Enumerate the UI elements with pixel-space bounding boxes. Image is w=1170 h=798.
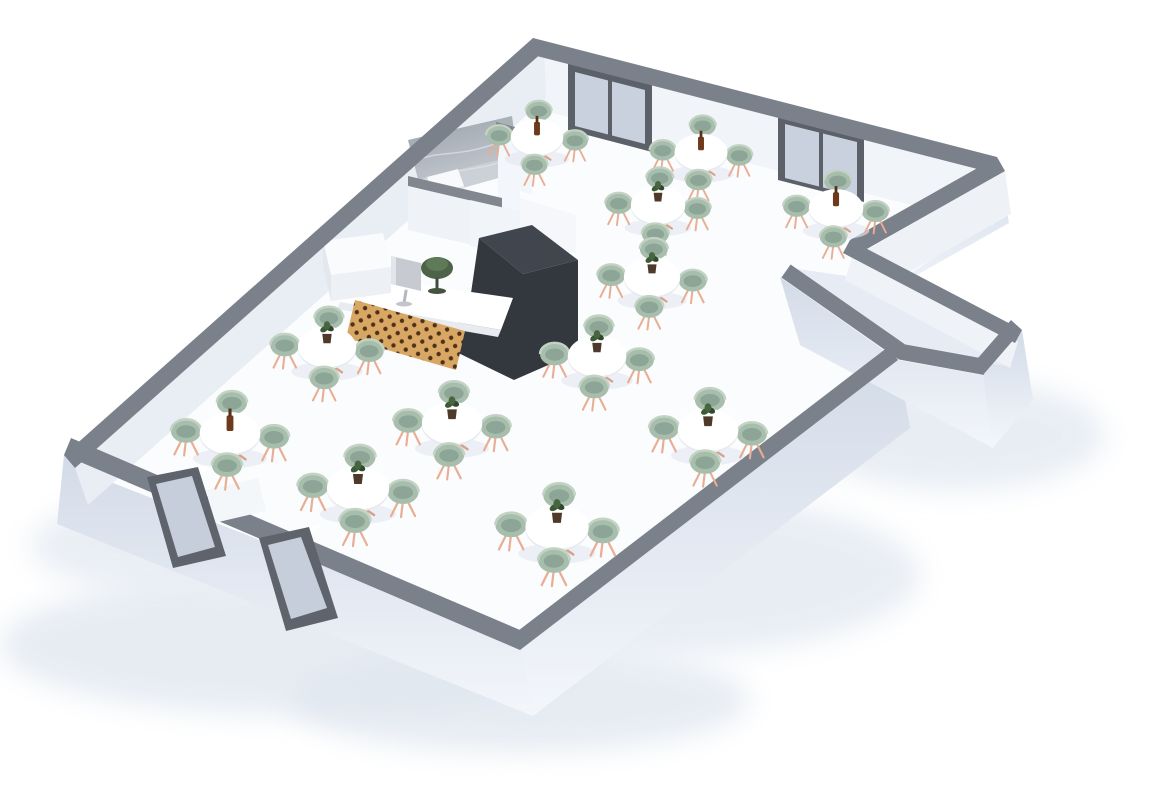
monitor-stand [404,291,406,303]
tub-chair [526,101,552,121]
plant-pot [647,264,656,273]
chair-seat [602,270,620,282]
table-bottle-neck [700,131,703,138]
tub-chair [217,391,247,414]
plant-pot [353,474,363,484]
plant-pot [447,409,457,419]
table-bottle-neck [536,116,539,123]
table-bottle-neck [228,409,231,417]
chair-seat [486,421,505,434]
plant-pot [703,416,713,426]
chair-seat [593,525,613,538]
plant-leaf [553,499,560,508]
tub-chair [824,170,851,191]
chair-seat [501,519,521,532]
chair-seat [731,150,748,161]
chair-seat [264,431,284,444]
plant-leaf [354,460,361,469]
monitor-base [396,302,412,307]
chair-seat [545,348,564,360]
chair-seat [695,456,715,469]
chair-seat [530,106,547,117]
plant-leaf [594,330,601,338]
chair-seat [585,381,604,393]
chair-seat [491,130,508,141]
table-bottle [698,137,704,151]
chair-seat [526,160,543,171]
table-top [298,327,356,367]
table-top [624,258,680,297]
chair-seat [217,459,237,472]
chair-seat [654,145,671,156]
plant-leaf [649,252,655,260]
chair-seat [640,301,658,313]
chair-seat [689,203,706,214]
plant-leaf [655,181,661,189]
chair-seat [742,428,762,441]
chair-seat [222,397,242,410]
chair-seat [654,422,674,435]
table-top [568,336,626,376]
table-top [327,466,389,509]
chair-seat [630,354,649,366]
chair-seat [825,232,843,243]
plant-leaf [705,403,712,412]
floor-plan-svg [0,0,1170,798]
chair-seat [610,198,627,209]
chair-seat [360,345,379,357]
chair-seat [829,176,847,187]
chair-seat [399,415,418,428]
table-bottle [833,192,839,206]
chair-seat [315,372,334,384]
monitor-edge [391,256,396,285]
chair-seat [303,480,323,493]
chair-seat [345,515,365,528]
chair-seat [544,555,564,568]
plant-leaf [324,321,331,329]
table-bottle-neck [835,186,838,193]
tub-chair [690,115,716,135]
plant-pot [592,343,601,352]
chair-seat [694,121,711,132]
plant-leaf [449,396,456,405]
table-bottle [227,415,234,431]
table-top [422,402,482,444]
chair-seat [275,339,294,351]
office-chair-base [428,288,446,294]
plant-pot [322,334,331,343]
chair-seat [788,201,806,212]
table-top [678,409,738,451]
chair-seat [690,175,707,186]
floor-plan-render: 3D isometric architectural render — café… [0,0,1170,798]
table-top [525,505,588,549]
chair-seat [176,425,196,438]
chair-seat [439,449,458,462]
chair-seat [393,486,413,499]
table-top [631,186,685,224]
chair-seat [867,206,885,217]
office-chair-seat [426,257,448,271]
table-bottle [534,122,540,135]
chair-seat [567,135,584,146]
chair-seat [684,275,702,287]
plant-pot [654,193,663,202]
plant-pot [552,513,562,523]
